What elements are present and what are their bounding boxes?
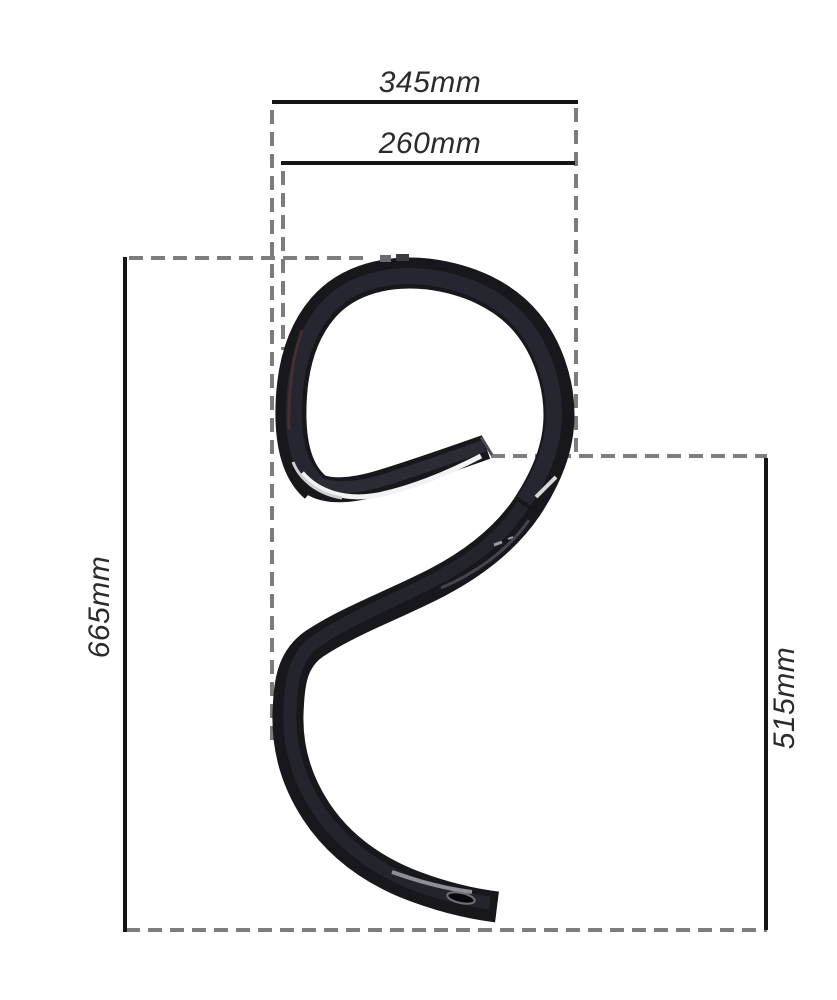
dimension-diagram: 345mm 260mm 665mm 515mm [0, 0, 837, 1000]
extension-lines [126, 108, 767, 930]
paint-chip-top-right [396, 254, 409, 261]
dim-label-top-width: 345mm [345, 66, 515, 100]
spring-tine-photo [288, 254, 559, 907]
dim-label-leg-height: 515mm [768, 613, 802, 783]
paint-chip-top-left [380, 255, 391, 262]
dim-label-overall-height: 665mm [83, 522, 117, 692]
dimension-lines [125, 102, 766, 932]
dim-label-coil-width: 260mm [345, 127, 515, 161]
